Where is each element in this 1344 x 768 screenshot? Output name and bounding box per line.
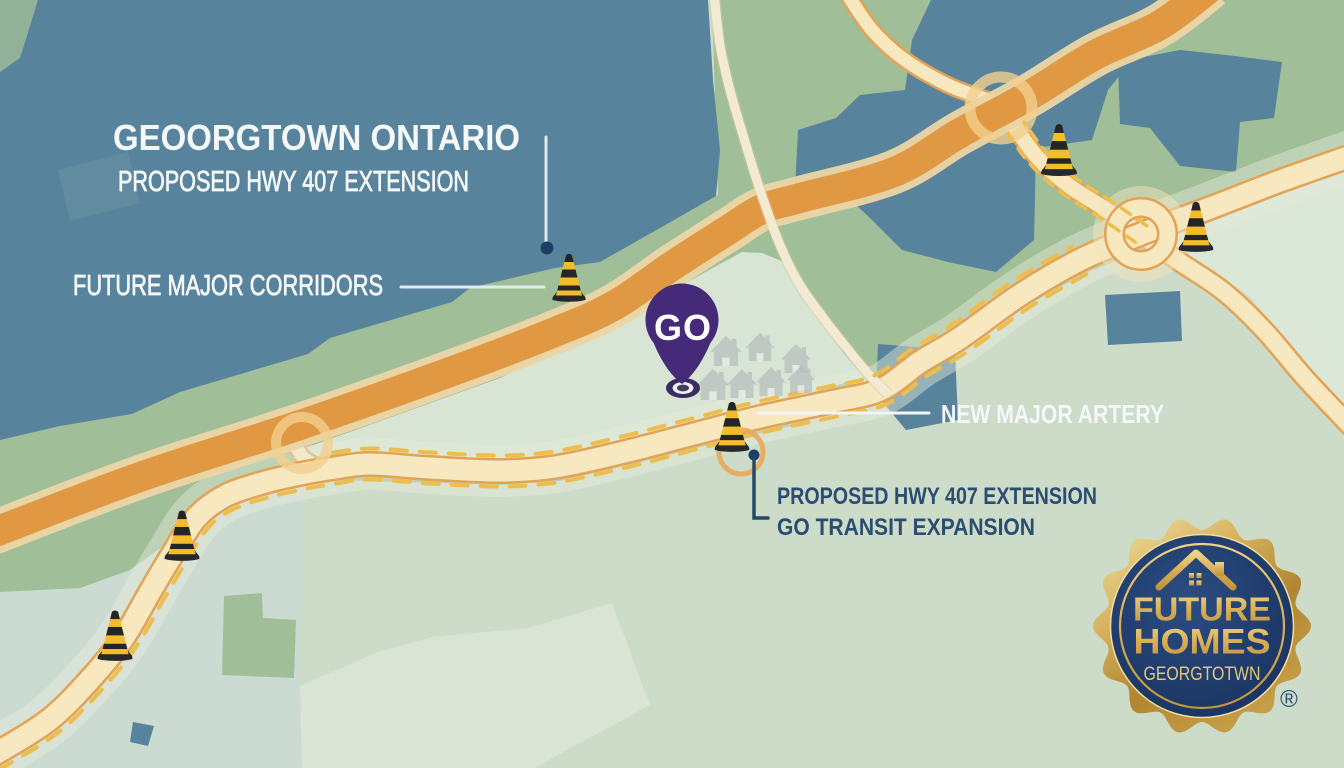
svg-text:PROPOSED HWY 407 EXTENSION: PROPOSED HWY 407 EXTENSION xyxy=(118,166,469,198)
svg-text:GO TRANSIT EXPANSION: GO TRANSIT EXPANSION xyxy=(777,514,1035,541)
svg-text:®: ® xyxy=(1280,686,1298,713)
svg-text:GO: GO xyxy=(654,307,712,348)
svg-text:PROPOSED HWY 407 EXTENSION: PROPOSED HWY 407 EXTENSION xyxy=(777,483,1097,510)
svg-text:FUTURE MAJOR CORRIDORS: FUTURE MAJOR CORRIDORS xyxy=(73,270,383,302)
svg-text:HOMES: HOMES xyxy=(1134,622,1271,662)
svg-text:GEORGTOTWN: GEORGTOTWN xyxy=(1144,664,1261,685)
svg-text:GEOORGTOWN ONTARIO: GEOORGTOWN ONTARIO xyxy=(113,117,520,158)
svg-text:NEW MAJOR ARTERY: NEW MAJOR ARTERY xyxy=(941,399,1164,429)
